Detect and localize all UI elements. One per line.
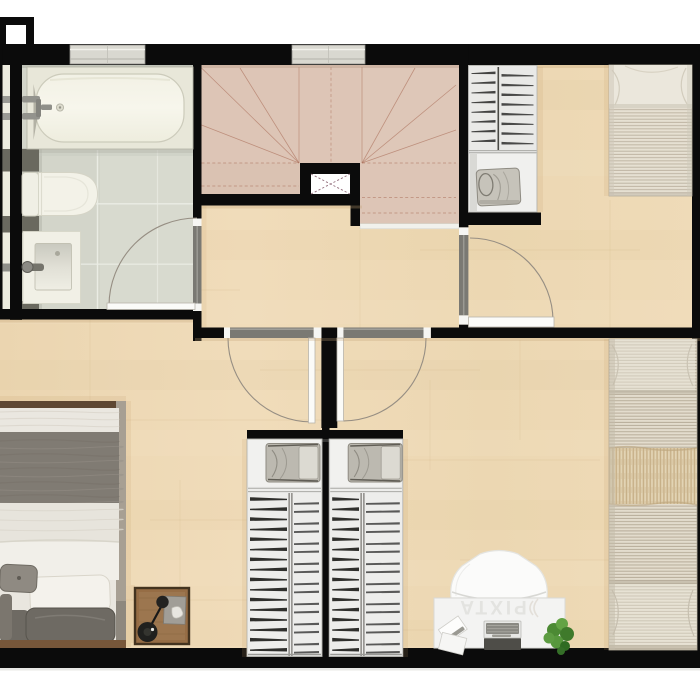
svg-text:PIXTA: PIXTA bbox=[457, 596, 527, 617]
